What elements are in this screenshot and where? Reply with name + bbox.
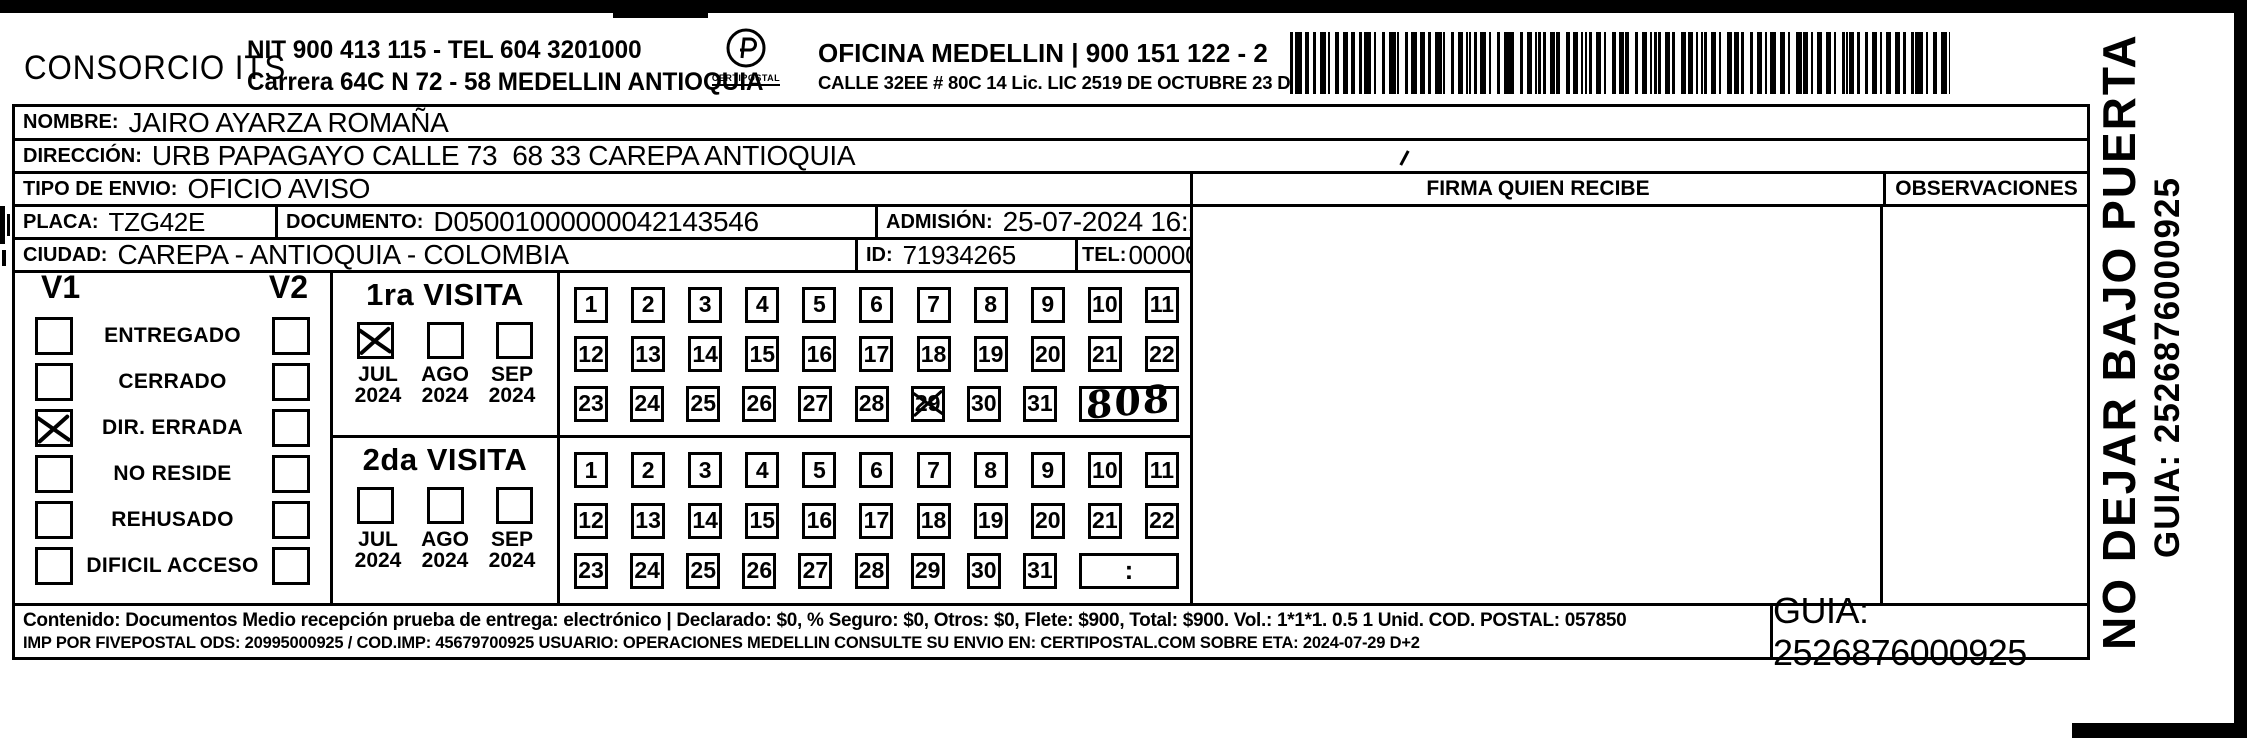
scan-artifact-top-lip [613, 13, 708, 18]
nombre-label: NOMBRE: [23, 111, 119, 134]
v2-checkbox-no-reside [272, 455, 310, 493]
tel-value: 0000000 [1128, 240, 1190, 270]
day-box-24: 24 [630, 386, 664, 422]
signature-area [1193, 207, 2087, 603]
day-box-17: 17 [859, 336, 893, 372]
status-label-cerrado: CERRADO [73, 370, 272, 394]
day-box-14: 14 [688, 503, 722, 539]
day-box-9: 9 [1031, 452, 1065, 488]
tipo-envio-label: TIPO DE ENVIO: [23, 178, 177, 201]
v2-checkbox-cerrado [272, 363, 310, 401]
visit1-time-box: 808 [1079, 386, 1179, 422]
visit-status-column: V1 V2 ENTREGADOCERRADODIR. ERRADANO RESI… [15, 273, 333, 603]
day-box-30: 30 [967, 553, 1001, 589]
day-box-13: 13 [631, 503, 665, 539]
day-row: 1213141516171819202122 [560, 336, 1193, 372]
admision-label: ADMISIÓN: [886, 211, 993, 234]
signature-header-row: FIRMA QUIEN RECIBE OBSERVACIONES [1193, 174, 2087, 207]
row-ciudad-id-tel: CIUDAD: CAREPA - ANTIOQUIA - COLOMBIA ID… [15, 240, 1193, 273]
day-box-25: 25 [686, 553, 720, 589]
admision-cell: ADMISIÓN: 25-07-2024 16:29:37 [878, 207, 1190, 237]
company-contact-block: NIT 900 413 115 - TEL 604 3201000 Carrer… [247, 34, 764, 98]
day-row: 1213141516171819202122 [560, 503, 1193, 539]
month-label-jul: JUL2024 [346, 529, 410, 572]
day-box-3: 3 [688, 452, 722, 488]
day-box-2: 2 [631, 287, 665, 323]
v2-checkbox-rehusado [272, 501, 310, 539]
v1-checkbox-dir-errada [35, 409, 73, 447]
day-box-29: 29 [911, 386, 945, 422]
guia-number-box: GUIA: 2526876000925 [1773, 606, 2087, 657]
second-visit-day-grid: 1234567891011121314151617181920212223242… [560, 438, 1193, 603]
visit1-month-checkbox-jul-2024 [357, 322, 394, 359]
nombre-value: JAIRO AYARZA ROMAÑA [129, 107, 449, 139]
v1-checkbox-no-reside [35, 455, 73, 493]
footer-row: Contenido: Documentos Medio recepción pr… [15, 603, 2087, 657]
day-box-10: 10 [1088, 287, 1122, 323]
day-box-27: 27 [798, 386, 832, 422]
day-box-12: 12 [574, 503, 608, 539]
shipment-details-block: Contenido: Documentos Medio recepción pr… [15, 606, 1773, 657]
status-row-entregado: ENTREGADO [15, 317, 330, 355]
tel-label: TEL: [1082, 244, 1126, 267]
direccion-label: DIRECCIÓN: [23, 145, 142, 168]
scan-artifact-bottom-corner [2072, 723, 2247, 738]
observaciones-header: OBSERVACIONES [1886, 174, 2087, 204]
month-year: 2024 [413, 550, 477, 571]
scan-artifact-top-bar [0, 0, 2247, 13]
visit1-time-value: 808 [1086, 379, 1172, 425]
ciudad-value: CAREPA - ANTIOQUIA - COLOMBIA [117, 240, 568, 270]
day-box-20: 20 [1031, 336, 1065, 372]
month-name: AGO [413, 364, 477, 385]
scan-speck [0, 206, 5, 244]
day-box-18: 18 [917, 336, 951, 372]
ciudad-cell: CIUDAD: CAREPA - ANTIOQUIA - COLOMBIA [15, 240, 858, 270]
visit1-month-checkbox-sep-2024 [496, 322, 533, 359]
day-box-11: 11 [1145, 452, 1179, 488]
day-box-1: 1 [574, 287, 608, 323]
placa-cell: PLACA: TZG42E [15, 207, 278, 237]
tel-cell: TEL: 0000000 [1078, 240, 1190, 270]
certipostal-logo-text: CERTIPOSTAL [712, 73, 780, 86]
v1-checkbox-cerrado [35, 363, 73, 401]
month-year: 2024 [346, 385, 410, 406]
day-box-21: 21 [1088, 503, 1122, 539]
admision-value: 25-07-2024 16:29:37 [1003, 207, 1190, 237]
visit2-month-checkbox-sep-2024 [496, 487, 533, 524]
direccion-value: URB PAPAGAYO CALLE 73 68 33 CAREPA ANTIO… [152, 141, 855, 172]
visit2-month-checkbox-ago-2024 [427, 487, 464, 524]
office-info-block: OFICINA MEDELLIN | 900 151 122 - 2 CALLE… [818, 38, 1348, 94]
month-label-sep: SEP2024 [480, 364, 544, 407]
scanned-delivery-form: CONSORCIO ITS NIT 900 413 115 - TEL 604 … [0, 0, 2247, 738]
day-box-29: 29 [911, 553, 945, 589]
day-box-19: 19 [974, 503, 1008, 539]
office-line: OFICINA MEDELLIN | 900 151 122 - 2 [818, 38, 1348, 69]
company-address-line: Carrera 64C N 72 - 58 MEDELLIN ANTIOQUIA [247, 66, 764, 98]
second-visit-month-checkboxes [333, 487, 557, 524]
day-box-23: 23 [574, 553, 608, 589]
day-box-31: 31 [1023, 386, 1057, 422]
firma-quien-recibe-header: FIRMA QUIEN RECIBE [1193, 174, 1886, 204]
day-box-26: 26 [742, 553, 776, 589]
placa-label: PLACA: [23, 211, 99, 234]
day-box-6: 6 [859, 287, 893, 323]
day-box-10: 10 [1088, 452, 1122, 488]
placa-value: TZG42E [109, 207, 205, 237]
second-visit-title: 2da VISITA [333, 442, 557, 478]
ciudad-label: CIUDAD: [23, 244, 107, 267]
month-name: AGO [413, 529, 477, 550]
first-visit-day-grid: 1234567891011121314151617181920212223242… [560, 273, 1193, 435]
day-box-16: 16 [802, 336, 836, 372]
day-row: 232425262728293031808 [560, 386, 1193, 422]
first-visit-month-labels: JUL2024AGO2024SEP2024 [333, 364, 557, 407]
month-label-jul: JUL2024 [346, 364, 410, 407]
first-visit-month-checkboxes [333, 322, 557, 359]
status-label-entregado: ENTREGADO [73, 324, 272, 348]
month-label-ago: AGO2024 [413, 364, 477, 407]
visit-grids: 1ra VISITA JUL2024AGO2024SEP2024 1234567… [333, 273, 1193, 603]
certipostal-logo: CERTIPOSTAL [706, 26, 786, 86]
status-label-dificil-acceso: DIFICIL ACCESO [73, 554, 272, 578]
side-warning-text: NO DEJAR BAJO PUERTA [2092, 85, 2146, 650]
day-box-31: 31 [1023, 553, 1057, 589]
month-year: 2024 [346, 550, 410, 571]
tipo-envio-value: OFICIO AVISO [187, 174, 370, 205]
status-checkbox-rows: ENTREGADOCERRADODIR. ERRADANO RESIDEREHU… [15, 309, 330, 593]
status-row-rehusado: REHUSADO [15, 501, 330, 539]
row-placa-documento-admision: PLACA: TZG42E DOCUMENTO: D05001000000042… [15, 207, 1193, 240]
day-box-9: 9 [1031, 287, 1065, 323]
first-visit-row: 1ra VISITA JUL2024AGO2024SEP2024 1234567… [333, 273, 1193, 438]
day-box-4: 4 [745, 287, 779, 323]
first-visit-title: 1ra VISITA [333, 277, 557, 313]
month-year: 2024 [480, 385, 544, 406]
first-visit-months-cell: 1ra VISITA JUL2024AGO2024SEP2024 [333, 273, 560, 435]
id-label: ID: [866, 244, 893, 267]
v2-checkbox-dir-errada [272, 409, 310, 447]
certipostal-logo-icon [723, 26, 769, 72]
day-box-14: 14 [688, 336, 722, 372]
visit2-time-box: : [1079, 553, 1179, 589]
row-nombre: NOMBRE: JAIRO AYARZA ROMAÑA [15, 107, 2087, 141]
day-box-28: 28 [855, 553, 889, 589]
scan-speck [7, 214, 10, 236]
v1-checkbox-dificil-acceso [35, 547, 73, 585]
day-box-30: 30 [967, 386, 1001, 422]
day-box-16: 16 [802, 503, 836, 539]
day-box-28: 28 [855, 386, 889, 422]
status-row-cerrado: CERRADO [15, 363, 330, 401]
company-nit-line: NIT 900 413 115 - TEL 604 3201000 [247, 34, 764, 66]
month-year: 2024 [480, 550, 544, 571]
day-box-12: 12 [574, 336, 608, 372]
day-box-20: 20 [1031, 503, 1065, 539]
firma-space [1193, 207, 1883, 603]
day-box-17: 17 [859, 503, 893, 539]
day-box-22: 22 [1145, 503, 1179, 539]
status-label-dir-errada: DIR. ERRADA [73, 416, 272, 440]
day-row: 232425262728293031: [560, 553, 1193, 589]
v1-checkbox-rehusado [35, 501, 73, 539]
visit1-month-checkbox-ago-2024 [427, 322, 464, 359]
second-visit-row: 2da VISITA JUL2024AGO2024SEP2024 1234567… [333, 438, 1193, 603]
row-direccion: DIRECCIÓN: URB PAPAGAYO CALLE 73 68 33 C… [15, 141, 2087, 174]
id-value: 71934265 [903, 240, 1016, 270]
day-box-2: 2 [631, 452, 665, 488]
status-label-no-reside: NO RESIDE [73, 462, 272, 486]
day-box-3: 3 [688, 287, 722, 323]
v1-checkbox-entregado [35, 317, 73, 355]
day-box-18: 18 [917, 503, 951, 539]
day-box-26: 26 [742, 386, 776, 422]
day-box-6: 6 [859, 452, 893, 488]
month-name: SEP [480, 529, 544, 550]
month-name: SEP [480, 364, 544, 385]
v2-checkbox-entregado [272, 317, 310, 355]
status-row-no-reside: NO RESIDE [15, 455, 330, 493]
status-row-dir-errada: DIR. ERRADA [15, 409, 330, 447]
documento-label: DOCUMENTO: [286, 211, 423, 234]
month-label-ago: AGO2024 [413, 529, 477, 572]
day-box-15: 15 [745, 503, 779, 539]
day-row: 1234567891011 [560, 452, 1193, 488]
shipment-content-line: Contenido: Documentos Medio recepción pr… [23, 610, 1770, 632]
second-visit-month-labels: JUL2024AGO2024SEP2024 [333, 529, 557, 572]
side-guia-text: GUIA: 2526876000925 [2148, 95, 2188, 640]
day-box-7: 7 [917, 452, 951, 488]
status-row-dificil-acceso: DIFICIL ACCESO [15, 547, 330, 585]
documento-cell: DOCUMENTO: D05001000000042143546 [278, 207, 878, 237]
documento-value: D05001000000042143546 [433, 207, 758, 237]
day-box-8: 8 [974, 287, 1008, 323]
shipment-system-line: IMP POR FIVEPOSTAL ODS: 20995000925 / CO… [23, 634, 1770, 653]
month-name: JUL [346, 529, 410, 550]
day-box-4: 4 [745, 452, 779, 488]
delivery-form-table: NOMBRE: JAIRO AYARZA ROMAÑA DIRECCIÓN: U… [12, 104, 2090, 660]
day-box-21: 21 [1088, 336, 1122, 372]
status-label-rehusado: REHUSADO [73, 508, 272, 532]
scan-speck [2, 250, 6, 266]
day-box-19: 19 [974, 336, 1008, 372]
v2-column-label: V2 [269, 269, 308, 306]
day-box-5: 5 [802, 287, 836, 323]
tracking-barcode [1290, 32, 1950, 94]
visit2-time-value: : [1125, 555, 1134, 586]
day-box-22: 22 [1145, 336, 1179, 372]
v1-column-label: V1 [41, 269, 80, 306]
day-box-24: 24 [630, 553, 664, 589]
month-year: 2024 [413, 385, 477, 406]
second-visit-months-cell: 2da VISITA JUL2024AGO2024SEP2024 [333, 438, 560, 603]
v2-checkbox-dificil-acceso [272, 547, 310, 585]
scan-artifact-right-bar [2234, 13, 2247, 725]
id-cell: ID: 71934265 [858, 240, 1078, 270]
visit2-month-checkbox-jul-2024 [357, 487, 394, 524]
month-label-sep: SEP2024 [480, 529, 544, 572]
month-name: JUL [346, 364, 410, 385]
day-box-27: 27 [798, 553, 832, 589]
day-box-15: 15 [745, 336, 779, 372]
day-box-1: 1 [574, 452, 608, 488]
day-box-13: 13 [631, 336, 665, 372]
day-box-7: 7 [917, 287, 951, 323]
row-tipo-envio: TIPO DE ENVIO: OFICIO AVISO [15, 174, 1193, 207]
day-box-11: 11 [1145, 287, 1179, 323]
day-box-8: 8 [974, 452, 1008, 488]
day-row: 1234567891011 [560, 287, 1193, 323]
day-box-25: 25 [686, 386, 720, 422]
day-box-5: 5 [802, 452, 836, 488]
visits-section: V1 V2 ENTREGADOCERRADODIR. ERRADANO RESI… [15, 273, 1193, 603]
day-box-23: 23 [574, 386, 608, 422]
office-license-line: CALLE 32EE # 80C 14 Lic. LIC 2519 DE OCT… [818, 72, 1348, 94]
